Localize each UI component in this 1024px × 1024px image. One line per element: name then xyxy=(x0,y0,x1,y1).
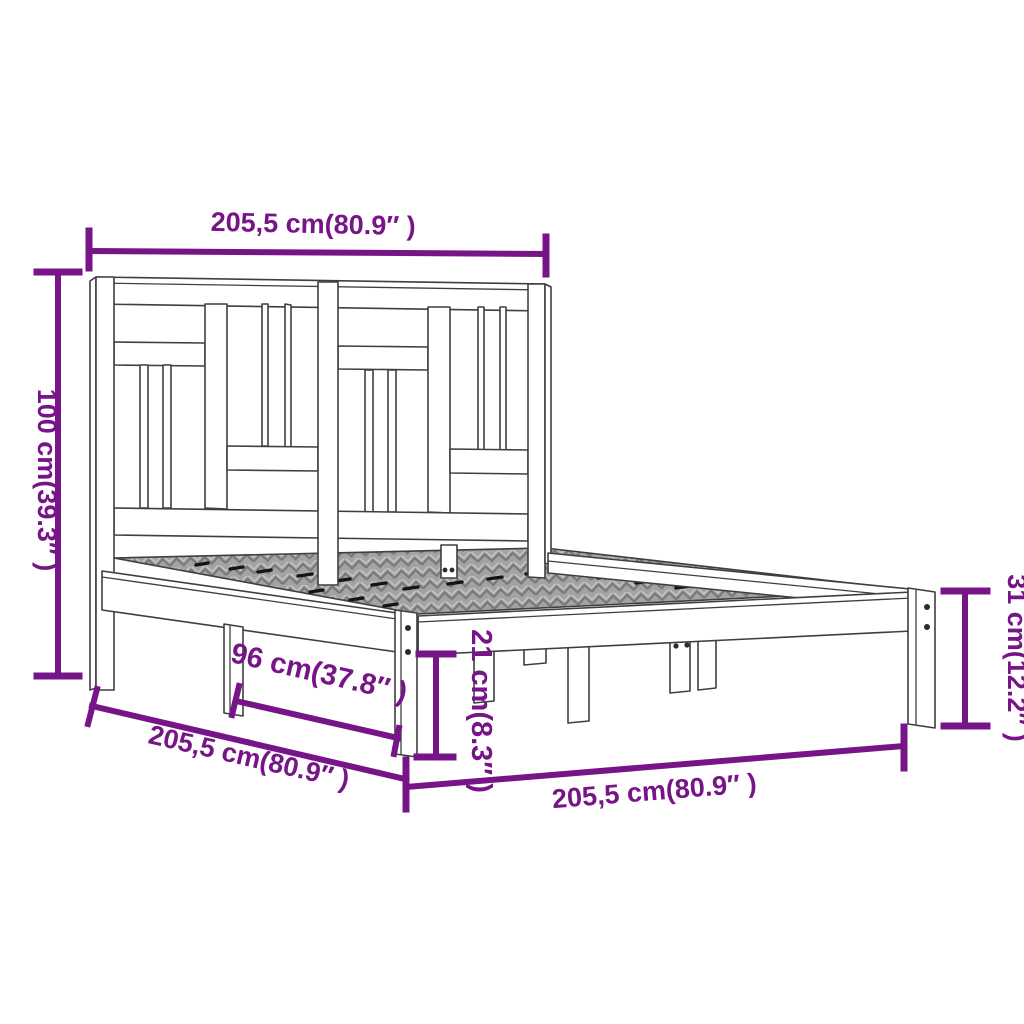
panel-bar xyxy=(114,342,205,366)
dim-foot-end-height-label: 31 cm(12.2″ ) xyxy=(1002,574,1024,742)
support-leg xyxy=(568,636,589,723)
panel-bar xyxy=(450,449,528,474)
panel-slat xyxy=(365,370,373,512)
front-right-corner-post xyxy=(908,588,935,728)
panel-slat xyxy=(262,304,268,446)
headboard-left-post-side xyxy=(90,277,96,690)
dim-top-length-label: 205,5 cm(80.9″ ) xyxy=(210,207,416,241)
panel-slat xyxy=(205,304,227,509)
panel-slat xyxy=(285,304,291,447)
panel-slat xyxy=(163,365,171,508)
dimension-headboard-height: 100 cm(39.3″ ) xyxy=(32,272,79,676)
panel-slat xyxy=(140,365,148,508)
panel-slat xyxy=(388,370,396,512)
panel-bar xyxy=(227,446,318,471)
bed-frame-diagram: 205,5 cm(80.9″ ) 100 cm(39.3″ ) 31 cm(12… xyxy=(0,0,1024,1024)
dimension-top-length: 205,5 cm(80.9″ ) xyxy=(89,207,546,274)
headboard-center-stile xyxy=(318,282,338,585)
dim-headboard-height-label: 100 cm(39.3″ ) xyxy=(32,389,62,572)
headboard-right-post-side xyxy=(545,284,551,565)
panel-slat xyxy=(500,307,506,450)
dimension-support-spacing: 96 cm(37.8″ ) xyxy=(228,637,411,754)
panel-bar xyxy=(338,346,428,370)
dim-under-bed-clearance-label: 21 cm(8.3″ ) xyxy=(465,629,497,793)
dimension-foot-end-height: 31 cm(12.2″ ) xyxy=(944,574,1024,742)
panel-slat xyxy=(428,307,450,513)
headboard-right-post xyxy=(528,284,545,578)
bed-frame-diagram-page: 205,5 cm(80.9″ ) 100 cm(39.3″ ) 31 cm(12… xyxy=(0,0,1024,1024)
rail-bracket xyxy=(441,545,457,578)
panel-slat xyxy=(478,307,484,450)
headboard-left-post xyxy=(96,277,114,690)
